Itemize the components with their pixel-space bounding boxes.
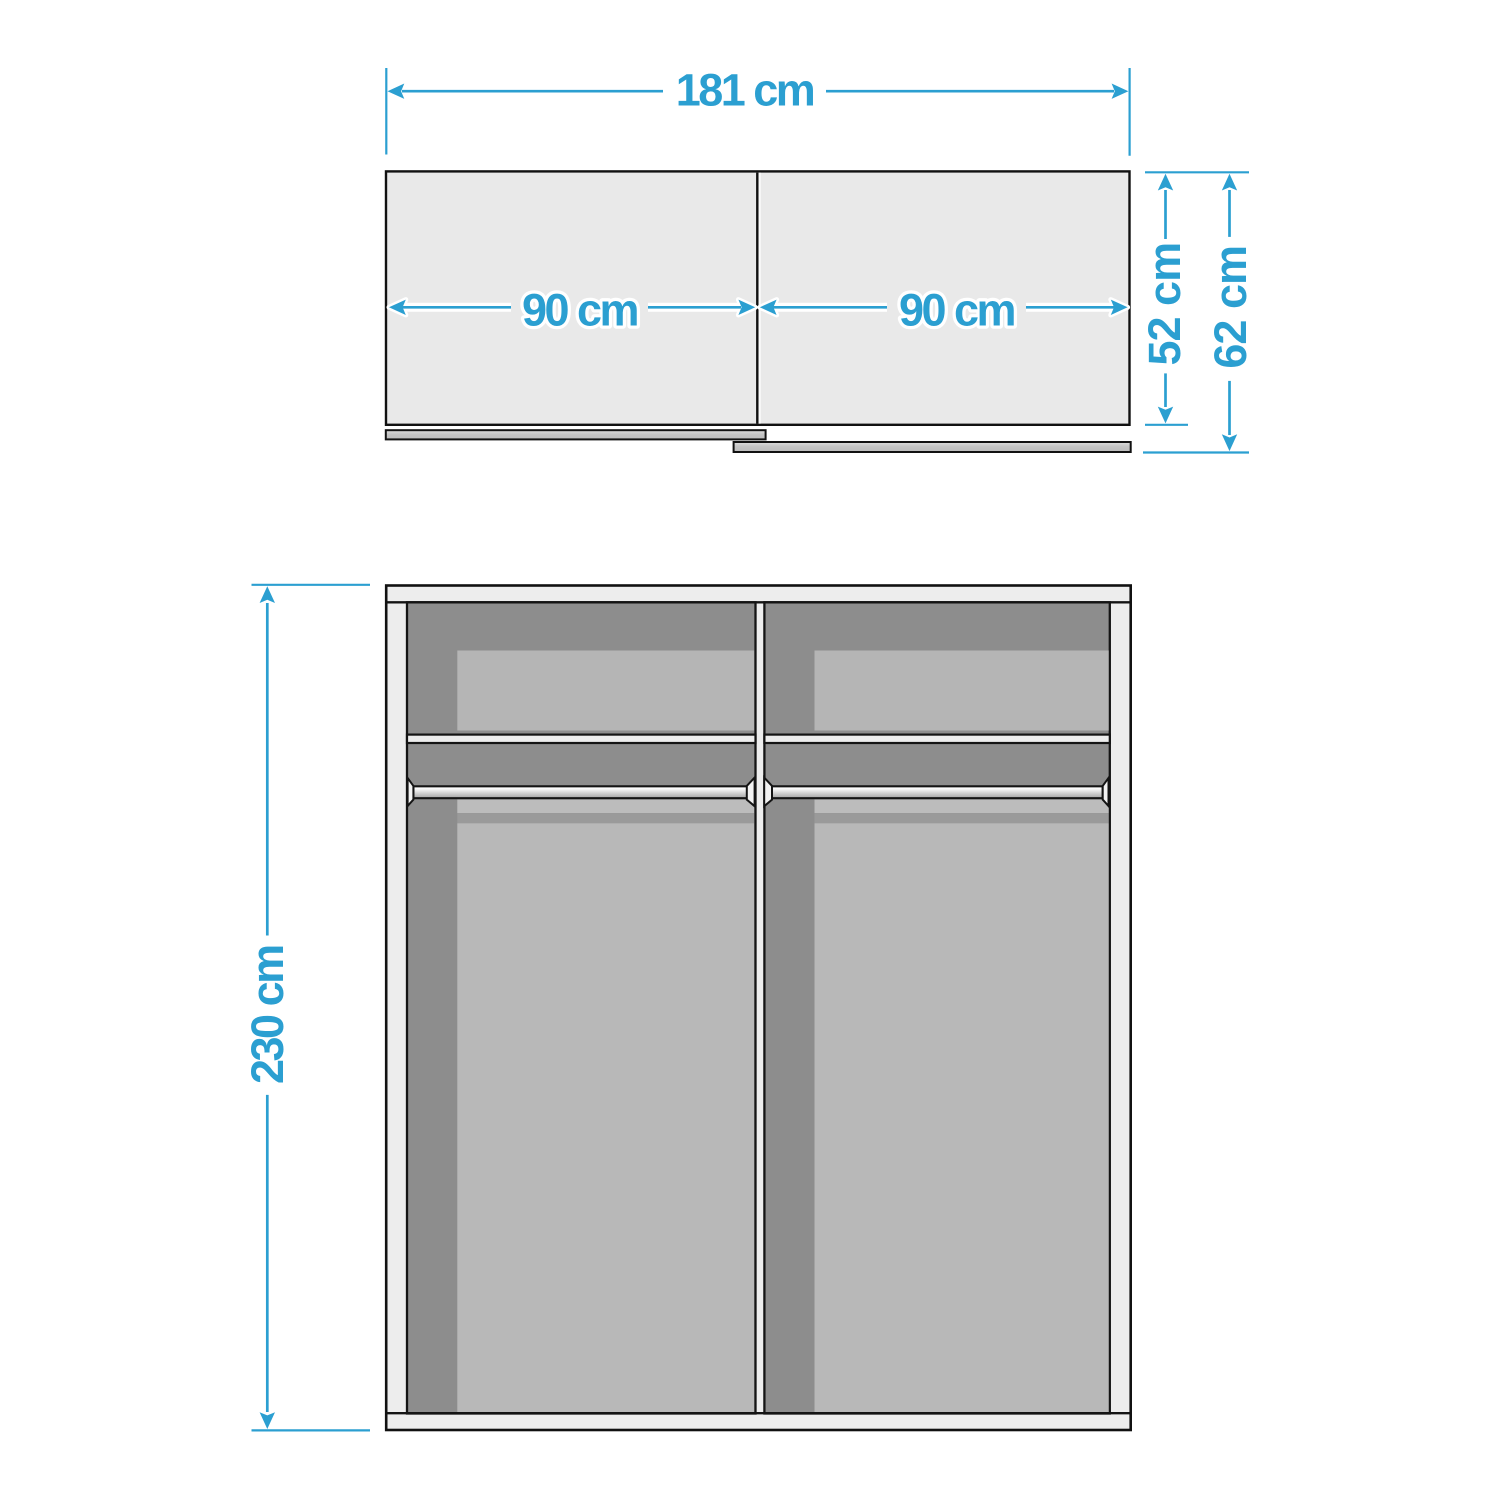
svg-text:230 cm: 230 cm xyxy=(242,946,293,1084)
svg-text:90 cm: 90 cm xyxy=(522,284,638,335)
svg-text:62 cm: 62 cm xyxy=(1205,246,1256,369)
svg-text:181 cm: 181 cm xyxy=(676,64,814,115)
svg-text:52 cm: 52 cm xyxy=(1139,243,1190,366)
svg-text:90 cm: 90 cm xyxy=(899,284,1015,335)
